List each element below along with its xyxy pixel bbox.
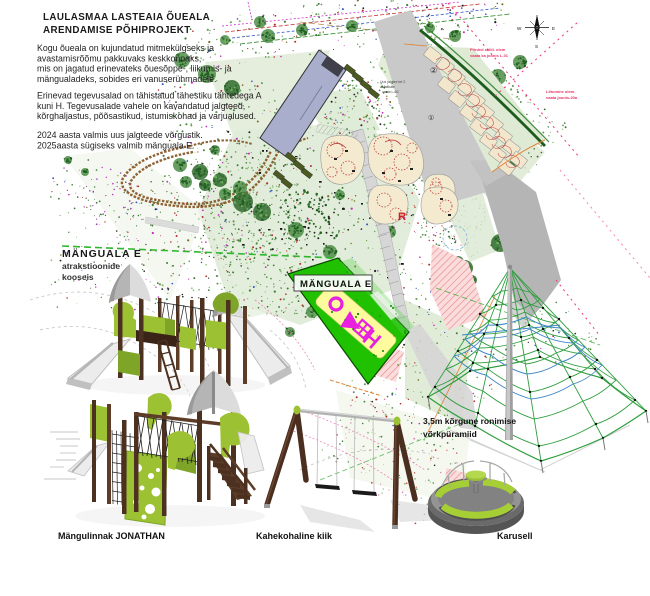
svg-text:vaata L-02: vaata L-02 bbox=[382, 90, 399, 94]
svg-text:ARENDAMISE PÕHIPROJEKT: ARENDAMISE PÕHIPROJEKT bbox=[43, 25, 191, 36]
svg-text:Piirded säilit. olem: Piirded säilit. olem bbox=[470, 47, 506, 52]
svg-text:Kogu õueala on kujundatud mitm: Kogu õueala on kujundatud mitmekülgseks … bbox=[37, 43, 214, 53]
svg-text:LAULASMAA LASTEAIA ÕUEALA: LAULASMAA LASTEAIA ÕUEALA bbox=[43, 12, 210, 23]
svg-text:MÄNGUALA E: MÄNGUALA E bbox=[62, 247, 142, 260]
svg-text:2025aasta sügiseks valmib mäng: 2025aasta sügiseks valmib mänguala E. bbox=[37, 140, 194, 150]
svg-text:atrakstioonide: atrakstioonide bbox=[62, 261, 120, 271]
svg-text:kõrghaljastus, põõsastikud, i: kõrghaljastus, põõsastikud, istumiskohad… bbox=[37, 111, 256, 121]
svg-text:avastamisrõõmu pakkuvaks keskk: avastamisrõõmu pakkuvaks keskkonnaks, bbox=[37, 53, 201, 63]
svg-text:kuni H. Tegevusalade vahele on: kuni H. Tegevusalade vahele on kavandatu… bbox=[37, 101, 245, 111]
svg-text:Uus jalgtee krt 2: Uus jalgtee krt 2 bbox=[380, 80, 405, 84]
svg-text:R: R bbox=[398, 211, 406, 223]
svg-text:mängualadeks, sobides eri vanu: mängualadeks, sobides eri vanuserühmadel… bbox=[37, 74, 216, 84]
svg-text:võrkpüramiid: võrkpüramiid bbox=[423, 429, 477, 439]
svg-text:Karusell: Karusell bbox=[497, 531, 533, 541]
svg-text:Mängulinnak JONATHAN: Mängulinnak JONATHAN bbox=[58, 531, 165, 541]
svg-text:①: ① bbox=[428, 114, 434, 122]
svg-text:Kahekohaline kiik: Kahekohaline kiik bbox=[256, 531, 333, 541]
svg-text:S: S bbox=[535, 44, 538, 49]
svg-text:3,5m kõrgune ronimise: 3,5m kõrgune ronimise bbox=[423, 416, 516, 426]
svg-text:MÄNGUALA E: MÄNGUALA E bbox=[300, 279, 372, 290]
svg-text:Erinevad tegevusalad on tähist: Erinevad tegevusalad on tähistatud tähes… bbox=[37, 91, 262, 101]
svg-text:vaata ka joonis L-01: vaata ka joonis L-01 bbox=[470, 53, 509, 58]
svg-text:Liitumine olem.: Liitumine olem. bbox=[546, 89, 575, 94]
svg-text:②: ② bbox=[430, 66, 437, 75]
svg-text:asfaltkate: asfaltkate bbox=[380, 85, 395, 89]
svg-text:mis on jagatud erinevateks õue: mis on jagatud erinevateks õuesõppe-, li… bbox=[37, 64, 232, 74]
svg-text:2024 aasta valmis uus jalgtee: 2024 aasta valmis uus jalgteede võrgusti… bbox=[37, 130, 203, 140]
svg-text:vaata joonis-20a: vaata joonis-20a bbox=[546, 95, 578, 100]
svg-text:kooseis: kooseis bbox=[62, 272, 94, 282]
svg-text:E: E bbox=[552, 26, 555, 31]
